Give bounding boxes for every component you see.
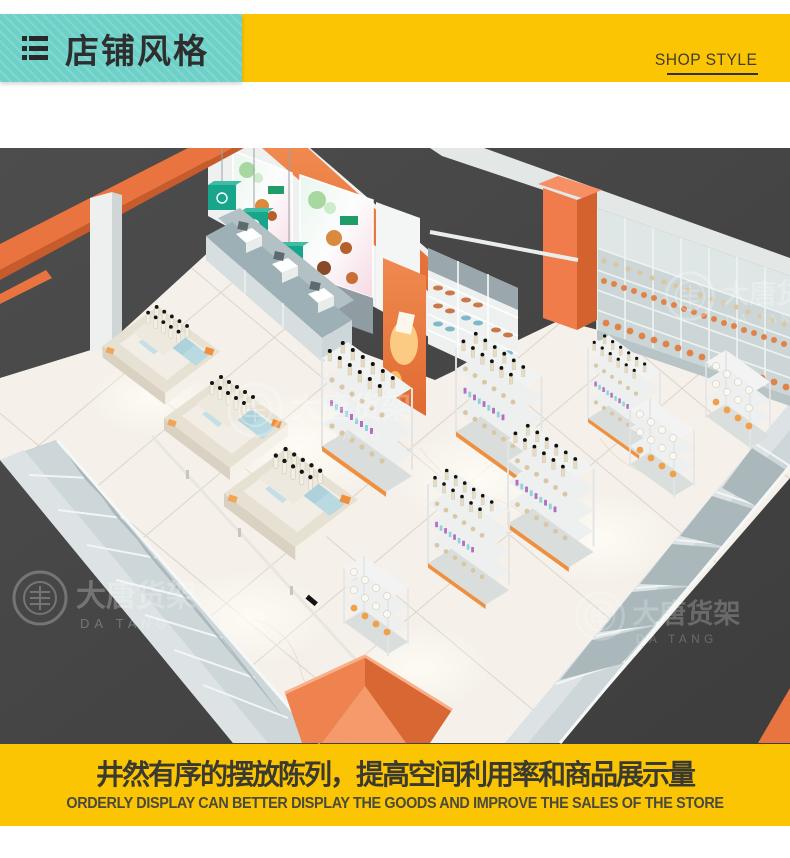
store-render-image: 大唐货架 DA TANG <box>0 148 790 744</box>
header-yellow-band <box>242 14 790 82</box>
caption-band: 井然有序的摆放陈列，提高空间利用率和商品展示量 ORDERLY DISPLAY … <box>0 744 790 826</box>
list-icon <box>22 36 48 60</box>
page-title: 店铺风格 <box>65 24 209 73</box>
store-render-svg: 大唐货架 DA TANG <box>0 148 790 744</box>
caption-chinese: 井然有序的摆放陈列，提高空间利用率和商品展示量 <box>0 757 790 793</box>
header-teal-band: 店铺风格 <box>0 14 242 82</box>
promo-page: 店铺风格 SHOP STYLE <box>0 0 790 858</box>
caption-english: ORDERLY DISPLAY CAN BETTER DISPLAY THE G… <box>40 795 751 813</box>
white-column <box>90 192 122 352</box>
subtitle-underline <box>667 73 758 75</box>
page-subtitle-en: SHOP STYLE <box>654 50 757 70</box>
